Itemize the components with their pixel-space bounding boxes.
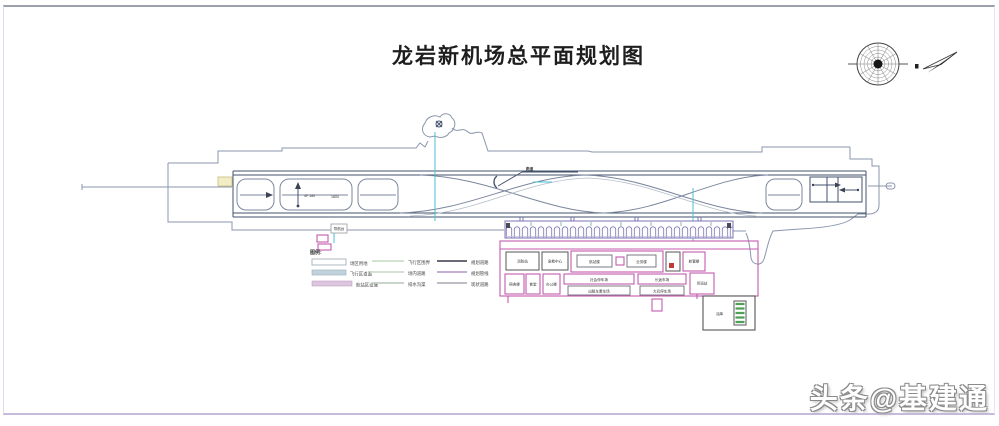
- runway-callout-label: 跑道: [526, 166, 534, 171]
- building-label: 货运站: [697, 281, 708, 286]
- navaid-station: 导航台: [317, 224, 347, 250]
- building-label: 宿舍楼: [509, 282, 520, 287]
- building: [666, 252, 680, 271]
- drawing-page: 4F 180 1800 跑道: [0, 0, 999, 426]
- terminal-label: 航站楼: [589, 259, 600, 264]
- legend-swatch: [312, 281, 352, 286]
- navaid-label: 导航台: [334, 226, 345, 231]
- legend-label: 飞行区道面: [350, 271, 373, 278]
- legend-swatch: [312, 270, 346, 275]
- legend-label: 现状道路: [471, 281, 489, 288]
- taxiway-loops: 4F 180 1800: [237, 179, 802, 210]
- apron: [505, 217, 733, 238]
- building-label: 消防站: [517, 259, 528, 264]
- page-title: 龙岩新机场总平面规划图: [0, 40, 999, 70]
- legend-label: 场区用地: [350, 260, 368, 267]
- fuel-label: 油库: [716, 311, 724, 316]
- parking-label: 长途车场: [655, 277, 670, 282]
- fuel-farm: 油库: [703, 296, 755, 330]
- legend-label: 排水沟渠: [408, 281, 426, 288]
- legend-label: 规划管线: [471, 270, 489, 277]
- legend-swatch: [312, 259, 346, 265]
- building-label: 食堂: [529, 282, 537, 287]
- dimension-note: 1800: [331, 195, 339, 199]
- dimension-label: 4F 180: [304, 194, 315, 198]
- runway-end-zone: [810, 177, 862, 202]
- rapid-exit-taxiways: [400, 175, 768, 216]
- legend-label: 规划道路: [471, 259, 489, 266]
- parking-label: 出租车蓄车场: [588, 289, 610, 294]
- legend-label: 飞行区围界: [408, 259, 431, 266]
- building-label: 业务楼: [636, 259, 647, 264]
- building-label: 急救中心: [548, 259, 563, 264]
- marker: [669, 263, 674, 268]
- watermark: 头条@基建通: [810, 377, 989, 417]
- parking-label: 大巴停车场: [653, 289, 671, 294]
- direction-arrow-icon: [266, 192, 273, 198]
- legend-label: 场内道路: [408, 270, 426, 277]
- parking-label: 社会停车场: [590, 277, 608, 282]
- site-boundary: [168, 114, 879, 264]
- threshold-marker: [218, 177, 232, 186]
- building-label: 航管楼: [689, 259, 700, 264]
- building-label: 办公楼: [546, 282, 557, 287]
- legend: 图例: 场区用地 飞行区道面 航站区设施 飞行区围界 场内道路 排水沟渠 规划道…: [310, 249, 489, 289]
- legend-header: 图例:: [310, 249, 322, 256]
